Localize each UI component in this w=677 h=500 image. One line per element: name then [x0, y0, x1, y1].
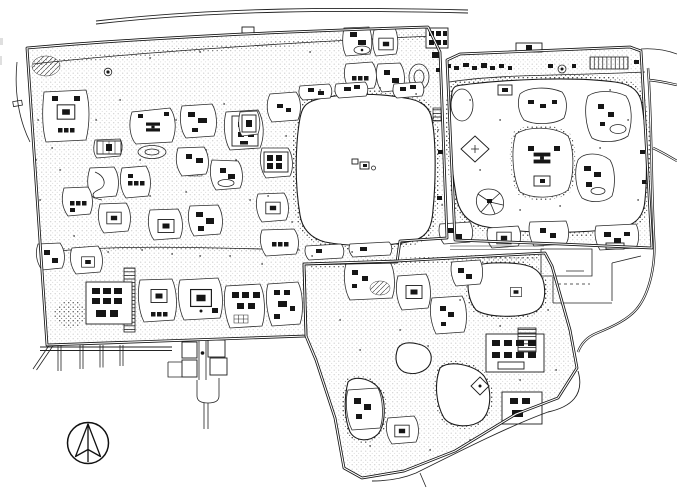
northwest-shrine-compound: [43, 90, 89, 142]
screenshot-canvas: [0, 0, 677, 500]
east-island: [576, 154, 615, 202]
tree-grove: [54, 300, 86, 328]
north-arrow-icon: [68, 423, 109, 464]
scan-smudge: [0, 56, 2, 65]
rounded-forecourt: [197, 378, 219, 403]
rock-garden: [32, 56, 60, 76]
north-road: [96, 8, 468, 24]
garden-site-plan-map: [0, 0, 677, 500]
central-island: [513, 128, 573, 197]
south-streets: [33, 344, 172, 371]
maze-garden: [590, 57, 628, 69]
star-islet: [476, 189, 503, 215]
central-lake: [296, 94, 435, 245]
scan-smudge: [0, 38, 3, 45]
north-wall-gate: [242, 27, 254, 33]
palace-gate-complex: [168, 340, 227, 429]
